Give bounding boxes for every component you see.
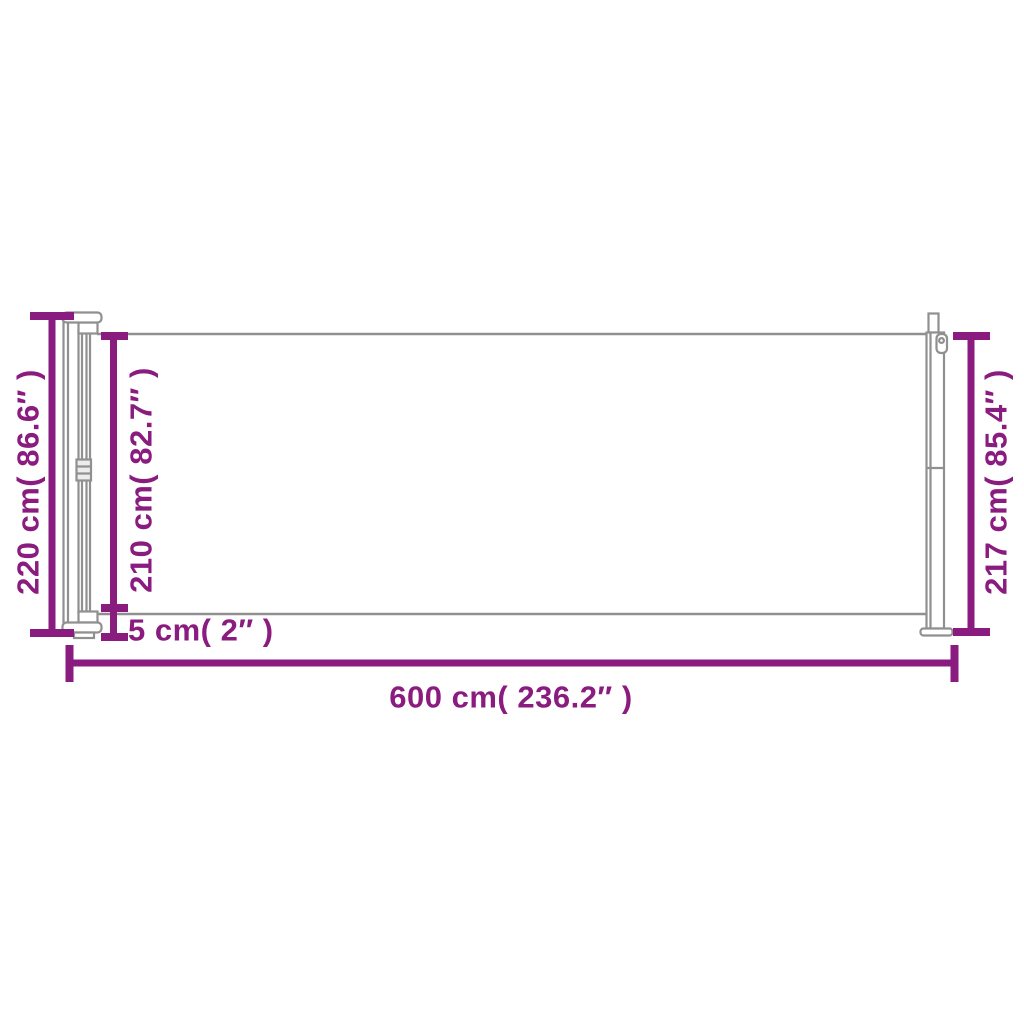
cassette-foot <box>74 633 94 639</box>
right-support-post <box>921 314 953 636</box>
dim-210-stem <box>110 336 117 608</box>
cassette-latch <box>77 460 92 481</box>
dim-5-stem <box>110 608 117 637</box>
dim-600-cap-right <box>951 645 959 682</box>
dimension-label-height-total: 220 cm( 86.6″ ) <box>13 369 44 595</box>
dimension-label-gap-bottom: 5 cm( 2″ ) <box>128 615 274 646</box>
left-cassette-post <box>63 313 102 639</box>
post-top-cap <box>929 314 939 333</box>
post-foot-plate <box>921 629 953 636</box>
cassette-top-bracket <box>79 323 98 334</box>
cassette-bottom-bracket <box>79 612 98 623</box>
dim-217-stem <box>968 336 975 632</box>
post-body <box>927 333 945 629</box>
dimension-line-length-total <box>66 645 959 682</box>
product-dimension-diagram: 220 cm( 86.6″ ) 210 cm( 82.7″ ) 5 cm( 2″… <box>0 0 1024 1024</box>
dim-220-stem <box>49 316 56 633</box>
dim-600-stem <box>70 660 955 667</box>
dim-5-cap-bottom <box>101 633 128 641</box>
awning-fabric <box>97 334 928 614</box>
dimension-label-height-right: 217 cm( 85.4″ ) <box>981 369 1012 595</box>
cassette-left-wall <box>64 320 69 623</box>
dimension-label-height-fabric: 210 cm( 82.7″ ) <box>126 367 157 593</box>
dimension-label-length-total: 600 cm( 236.2″ ) <box>389 682 632 713</box>
dim-220-cap-bottom <box>30 629 74 637</box>
dim-217-cap-bottom <box>953 628 990 636</box>
